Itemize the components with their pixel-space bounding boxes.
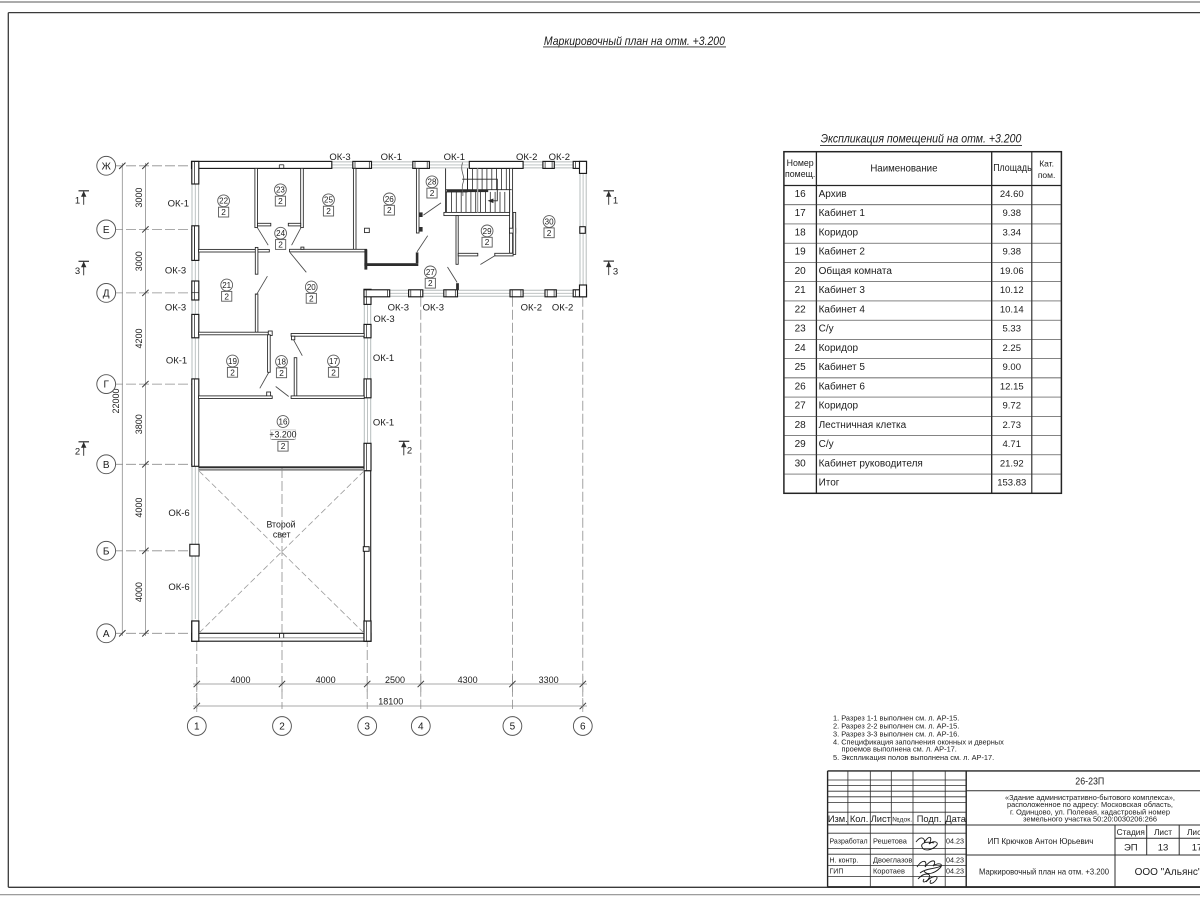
svg-text:2: 2 — [224, 291, 229, 301]
svg-text:Б: Б — [103, 546, 110, 557]
svg-text:23: 23 — [795, 324, 807, 335]
svg-text:22000: 22000 — [111, 388, 121, 413]
svg-text:Кол.: Кол. — [850, 814, 868, 824]
svg-text:Кабинет 4: Кабинет 4 — [819, 303, 866, 315]
svg-text:2: 2 — [279, 722, 285, 733]
svg-text:Экспликация помещений на отм.: Экспликация помещений на отм. +3.200 — [821, 132, 1022, 146]
svg-text:3000: 3000 — [134, 188, 144, 208]
svg-text:С/у: С/у — [819, 439, 834, 450]
svg-text:16: 16 — [795, 189, 807, 200]
svg-text:Итог: Итог — [819, 478, 840, 489]
svg-text:18: 18 — [277, 357, 286, 366]
svg-text:24: 24 — [276, 229, 285, 238]
svg-text:4.71: 4.71 — [1003, 439, 1022, 450]
svg-text:24: 24 — [795, 343, 807, 354]
svg-text:ОК-2: ОК-2 — [552, 302, 573, 313]
svg-text:5. Экспликация полов выполнена: 5. Экспликация полов выполнена см. л. АР… — [833, 753, 994, 762]
svg-text:+3.200: +3.200 — [269, 430, 296, 440]
svg-text:ОК-2: ОК-2 — [549, 152, 570, 163]
svg-text:9.72: 9.72 — [1003, 401, 1022, 412]
svg-text:9.38: 9.38 — [1003, 208, 1022, 219]
svg-text:Подп.: Подп. — [917, 814, 942, 824]
svg-text:4000: 4000 — [316, 675, 336, 685]
svg-text:2: 2 — [309, 293, 314, 303]
svg-text:Лист: Лист — [1154, 827, 1172, 837]
svg-text:6: 6 — [580, 722, 586, 733]
svg-text:А: А — [103, 629, 110, 640]
svg-text:2: 2 — [547, 228, 552, 238]
svg-text:12.15: 12.15 — [1000, 381, 1024, 392]
svg-text:помещ.: помещ. — [785, 169, 815, 179]
svg-text:23: 23 — [276, 186, 285, 195]
svg-text:Коридор: Коридор — [819, 228, 859, 239]
svg-text:17: 17 — [329, 357, 338, 366]
svg-text:3800: 3800 — [134, 414, 144, 434]
svg-text:3300: 3300 — [539, 675, 559, 685]
svg-text:30: 30 — [795, 458, 807, 469]
svg-text:Кабинет руководителя: Кабинет руководителя — [819, 457, 923, 469]
svg-text:24.60: 24.60 — [1000, 189, 1024, 200]
svg-text:26: 26 — [795, 381, 807, 392]
svg-text:Номер: Номер — [787, 158, 814, 168]
svg-text:3: 3 — [75, 266, 80, 277]
svg-text:Дата: Дата — [945, 814, 966, 824]
svg-text:Разработал: Разработал — [830, 838, 868, 846]
svg-text:4000: 4000 — [134, 498, 144, 518]
svg-text:2: 2 — [230, 367, 235, 377]
svg-text:18100: 18100 — [378, 696, 403, 706]
svg-text:2: 2 — [75, 447, 80, 458]
svg-text:ОК-3: ОК-3 — [165, 302, 186, 313]
svg-text:ИП Крючков Антон Юрьевич: ИП Крючков Антон Юрьевич — [988, 837, 1094, 846]
svg-text:В: В — [103, 460, 110, 471]
svg-text:Ж: Ж — [102, 161, 112, 172]
svg-text:1: 1 — [75, 196, 80, 207]
svg-text:17: 17 — [1192, 842, 1200, 853]
svg-text:Коротаев: Коротаев — [873, 867, 905, 876]
svg-text:30: 30 — [545, 217, 554, 226]
svg-text:Маркировочный план на отм. +3.: Маркировочный план на отм. +3.200 — [979, 868, 1109, 877]
svg-text:2: 2 — [279, 368, 284, 378]
svg-text:ОК-2: ОК-2 — [516, 152, 537, 163]
svg-text:4: 4 — [418, 722, 424, 733]
svg-text:18: 18 — [795, 228, 807, 239]
svg-text:21: 21 — [795, 285, 807, 296]
svg-text:Маркировочный план на отм. +3.: Маркировочный план на отм. +3.200 — [544, 34, 725, 48]
svg-text:4000: 4000 — [230, 675, 250, 685]
svg-text:Кабинет 1: Кабинет 1 — [819, 207, 866, 219]
svg-text:ОК-3: ОК-3 — [329, 152, 350, 163]
svg-text:2.73: 2.73 — [1003, 420, 1022, 431]
svg-text:ОК-3: ОК-3 — [373, 314, 394, 325]
svg-text:свет: свет — [273, 530, 291, 540]
svg-text:Лист: Лист — [871, 814, 892, 824]
svg-text:4300: 4300 — [458, 675, 478, 685]
svg-text:25: 25 — [795, 362, 807, 373]
svg-text:19.06: 19.06 — [1000, 266, 1024, 277]
svg-text:19: 19 — [228, 357, 237, 366]
svg-text:Архив: Архив — [819, 189, 847, 200]
svg-text:153.83: 153.83 — [997, 478, 1026, 489]
svg-text:2: 2 — [430, 188, 435, 198]
svg-text:10.12: 10.12 — [1000, 285, 1024, 296]
svg-text:5.33: 5.33 — [1003, 324, 1022, 335]
svg-text:ОК-1: ОК-1 — [373, 418, 394, 429]
svg-text:3: 3 — [613, 266, 618, 277]
svg-text:2: 2 — [281, 441, 286, 451]
svg-text:Решетова: Решетова — [873, 837, 908, 846]
svg-text:ОК-6: ОК-6 — [168, 582, 189, 593]
svg-text:2: 2 — [387, 205, 392, 215]
svg-text:2500: 2500 — [385, 675, 405, 685]
svg-text:13: 13 — [1158, 842, 1169, 853]
svg-text:Г: Г — [103, 380, 109, 391]
svg-text:25: 25 — [324, 196, 333, 205]
svg-text:9.38: 9.38 — [1003, 247, 1022, 258]
svg-text:22: 22 — [219, 197, 228, 206]
svg-text:3000: 3000 — [134, 251, 144, 271]
svg-text:ОК-1: ОК-1 — [168, 199, 189, 210]
svg-text:04.23: 04.23 — [946, 837, 964, 846]
svg-text:2: 2 — [278, 196, 283, 206]
svg-text:Лист: Лист — [1187, 827, 1200, 837]
svg-text:27: 27 — [426, 268, 435, 277]
svg-text:28: 28 — [428, 178, 437, 187]
svg-text:17: 17 — [795, 208, 807, 219]
svg-text:1: 1 — [194, 722, 200, 733]
svg-text:28: 28 — [795, 420, 807, 431]
svg-text:Двоеглазов: Двоеглазов — [873, 856, 912, 865]
svg-text:04.23: 04.23 — [946, 867, 964, 876]
svg-text:Наименование: Наименование — [870, 164, 937, 175]
svg-text:19: 19 — [795, 247, 807, 258]
svg-text:ГИП: ГИП — [830, 869, 844, 876]
svg-text:26-23П: 26-23П — [1075, 776, 1104, 787]
svg-text:ОК-1: ОК-1 — [166, 356, 187, 367]
svg-text:2: 2 — [428, 278, 433, 288]
svg-text:2: 2 — [331, 367, 336, 377]
svg-text:Стадия: Стадия — [1117, 827, 1145, 837]
svg-text:29: 29 — [483, 227, 492, 236]
svg-text:2.25: 2.25 — [1003, 343, 1022, 354]
svg-text:Коридор: Коридор — [819, 343, 859, 354]
svg-text:2: 2 — [278, 240, 283, 250]
svg-text:2: 2 — [221, 207, 226, 217]
svg-text:Коридор: Коридор — [819, 401, 859, 412]
svg-text:ОК-6: ОК-6 — [168, 508, 189, 519]
svg-text:16: 16 — [279, 417, 288, 426]
svg-text:2: 2 — [326, 206, 331, 216]
svg-text:4000: 4000 — [134, 582, 144, 602]
svg-text:Е: Е — [103, 225, 110, 236]
svg-text:04.23: 04.23 — [946, 856, 964, 865]
svg-text:ОК-1: ОК-1 — [381, 152, 402, 163]
svg-text:Площадь: Площадь — [993, 163, 1031, 174]
svg-text:С/у: С/у — [819, 324, 834, 335]
svg-text:ОК-1: ОК-1 — [444, 152, 465, 163]
svg-text:ОК-3: ОК-3 — [423, 302, 444, 313]
svg-text:9.00: 9.00 — [1003, 362, 1022, 373]
svg-text:Кабинет 5: Кабинет 5 — [819, 361, 866, 373]
svg-text:ОК-1: ОК-1 — [373, 353, 394, 364]
svg-text:Н. контр.: Н. контр. — [830, 858, 859, 865]
svg-text:пом.: пом. — [1038, 170, 1056, 180]
svg-text:Кабинет 6: Кабинет 6 — [819, 380, 866, 392]
svg-text:20: 20 — [307, 283, 316, 292]
svg-text:Кат.: Кат. — [1039, 159, 1054, 169]
svg-text:ОК-3: ОК-3 — [388, 302, 409, 313]
svg-text:3.34: 3.34 — [1003, 228, 1022, 239]
svg-text:Изм.: Изм. — [828, 814, 848, 824]
svg-text:26: 26 — [385, 195, 394, 204]
svg-text:№док.: №док. — [892, 817, 912, 824]
svg-text:ООО "Альянс": ООО "Альянс" — [1135, 867, 1200, 878]
svg-text:27: 27 — [795, 401, 807, 412]
svg-text:Лестничная клетка: Лестничная клетка — [819, 420, 907, 431]
svg-text:5: 5 — [510, 722, 516, 733]
svg-text:22: 22 — [795, 304, 807, 315]
svg-text:2: 2 — [407, 446, 412, 457]
svg-text:земельного участка 50:20:00302: земельного участка 50:20:0030206:266 — [1023, 815, 1157, 824]
svg-text:29: 29 — [795, 439, 807, 450]
svg-text:Д: Д — [103, 288, 110, 299]
svg-text:Кабинет 3: Кабинет 3 — [819, 284, 866, 296]
svg-text:21: 21 — [222, 281, 231, 290]
svg-text:ОК-2: ОК-2 — [521, 302, 542, 313]
svg-text:Кабинет 2: Кабинет 2 — [819, 246, 866, 258]
svg-text:Второй: Второй — [266, 519, 295, 529]
svg-text:3: 3 — [364, 722, 370, 733]
svg-text:10.14: 10.14 — [1000, 304, 1024, 315]
svg-text:20: 20 — [795, 266, 807, 277]
svg-text:Общая комната: Общая комната — [819, 265, 893, 277]
svg-text:1: 1 — [613, 196, 618, 207]
svg-text:4200: 4200 — [134, 328, 144, 348]
svg-text:ЭП: ЭП — [1124, 842, 1138, 853]
svg-text:2: 2 — [485, 237, 490, 247]
svg-text:21.92: 21.92 — [1000, 458, 1024, 469]
svg-text:ОК-3: ОК-3 — [165, 266, 186, 277]
